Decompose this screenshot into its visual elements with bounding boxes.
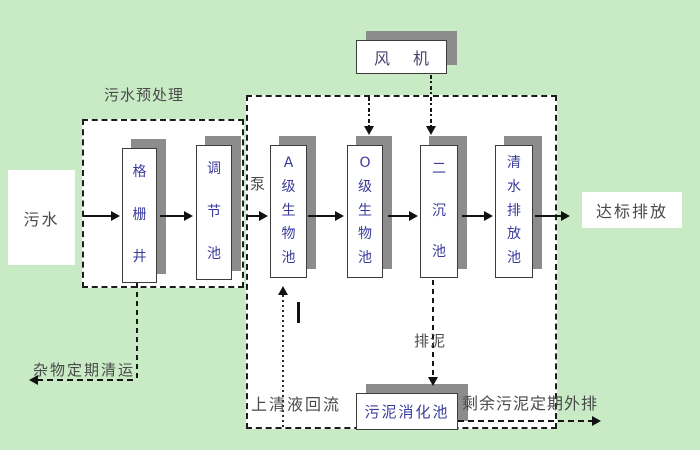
arrow-head <box>561 211 570 221</box>
tank-char: 级 <box>282 180 296 194</box>
tank-char: 沉 <box>432 204 446 218</box>
tank-char: 清 <box>507 156 521 170</box>
tank-char: 二 <box>432 162 446 176</box>
sludge-digestion-tank: 污泥消化池 <box>356 393 458 430</box>
debris-line-horizontal <box>37 379 136 381</box>
debris-line-vertical <box>136 283 138 381</box>
tank-char: 生 <box>358 204 372 218</box>
tank-char: 格 <box>133 165 147 179</box>
clear-water-label: 清 水 排 放 池 <box>496 146 532 277</box>
effluent-plate: 达标排放 <box>582 192 682 228</box>
tank-char: 池 <box>207 247 221 261</box>
arrow-shaft <box>462 215 485 217</box>
o-level-bio-tank: O 级 生 物 池 <box>347 145 383 278</box>
arrow-head <box>184 211 193 221</box>
tank-char: 栅 <box>133 208 147 222</box>
flow-arrow-grid-to-regulating <box>160 211 193 221</box>
sludge-discharge-arrowhead <box>428 377 438 386</box>
flow-arrow-pump-to-a-tank <box>247 211 268 221</box>
flow-arrow-influent <box>83 211 120 221</box>
debris-removal-label: 杂物定期清运 <box>33 362 135 379</box>
digestion-tank-label: 污泥消化池 <box>357 394 457 429</box>
arrow-head <box>409 211 418 221</box>
regulating-tank: 调 节 池 <box>196 145 232 280</box>
arrow-shaft <box>308 215 336 217</box>
grid-well-tank: 格 栅 井 <box>122 148 157 283</box>
arrow-shaft <box>535 215 562 217</box>
supernatant-return-label: 上清液回流 <box>251 396 341 414</box>
clear-water-discharge-tank: 清 水 排 放 池 <box>495 145 533 278</box>
arrow-shaft <box>83 215 112 217</box>
arrow-head <box>111 211 120 221</box>
tank-char: 水 <box>507 180 521 194</box>
o-bio-tank-label: O 级 生 物 池 <box>348 146 382 277</box>
tank-char: 池 <box>432 245 446 259</box>
tank-char: 生 <box>282 204 296 218</box>
tank-char: 池 <box>282 251 296 265</box>
fan-box: 风 机 <box>356 40 447 74</box>
tank-char: 放 <box>507 227 521 241</box>
influent-label: 污水 <box>23 206 59 230</box>
tank-char: 排 <box>507 204 521 218</box>
fan-air-line-o-tank <box>368 97 370 126</box>
secondary-sedimentation-tank: 二 沉 池 <box>420 145 458 278</box>
tank-char: 池 <box>507 251 521 265</box>
fan-air-arrowhead-sed-tank <box>426 126 436 135</box>
tank-char: 级 <box>358 180 372 194</box>
fan-air-line-sed-tank <box>430 75 432 126</box>
tick-mark <box>297 302 300 323</box>
a-bio-tank-label: A 级 生 物 池 <box>271 146 306 277</box>
flow-arrow-sed-to-clear <box>462 211 493 221</box>
flow-arrow-a-to-o <box>308 211 344 221</box>
tank-char: A <box>284 156 294 170</box>
tank-char: 井 <box>133 250 147 264</box>
sludge-discharge-line <box>432 280 434 377</box>
arrow-head <box>335 211 344 221</box>
fan-air-arrowhead-o-tank <box>364 126 374 135</box>
tank-char: 节 <box>207 205 221 219</box>
grid-well-label: 格 栅 井 <box>123 149 156 282</box>
arrow-head <box>259 211 268 221</box>
flow-arrow-effluent <box>535 211 570 221</box>
tank-char: 池 <box>358 251 372 265</box>
excess-sludge-label: 剩余污泥定期外排 <box>462 395 598 413</box>
arrow-shaft <box>388 215 410 217</box>
flow-arrow-o-to-sed <box>388 211 418 221</box>
tank-char: 物 <box>282 227 296 241</box>
regulating-tank-label: 调 节 池 <box>197 146 231 279</box>
wastewater-process-flow-diagram: 污水预处理 污水 达标排放 风 机 格 栅 井 调 节 池 A 级 生 <box>0 0 700 450</box>
excess-sludge-line <box>458 420 592 422</box>
tank-char: 物 <box>358 227 372 241</box>
pump-label: 泵 <box>250 176 265 193</box>
effluent-label: 达标排放 <box>596 198 668 222</box>
influent-plate: 污水 <box>8 170 75 265</box>
arrow-shaft <box>160 215 185 217</box>
fan-label: 风 机 <box>357 41 446 73</box>
supernatant-return-arrowhead <box>278 286 288 295</box>
excess-sludge-arrowhead <box>592 416 601 426</box>
pretreatment-label: 污水预处理 <box>104 87 184 104</box>
sludge-discharge-label: 排泥 <box>414 333 446 350</box>
arrow-head <box>484 211 493 221</box>
secondary-sed-label: 二 沉 池 <box>421 146 457 277</box>
a-level-bio-tank: A 级 生 物 池 <box>270 145 307 278</box>
tank-char: O <box>359 156 370 170</box>
tank-char: 调 <box>207 162 221 176</box>
